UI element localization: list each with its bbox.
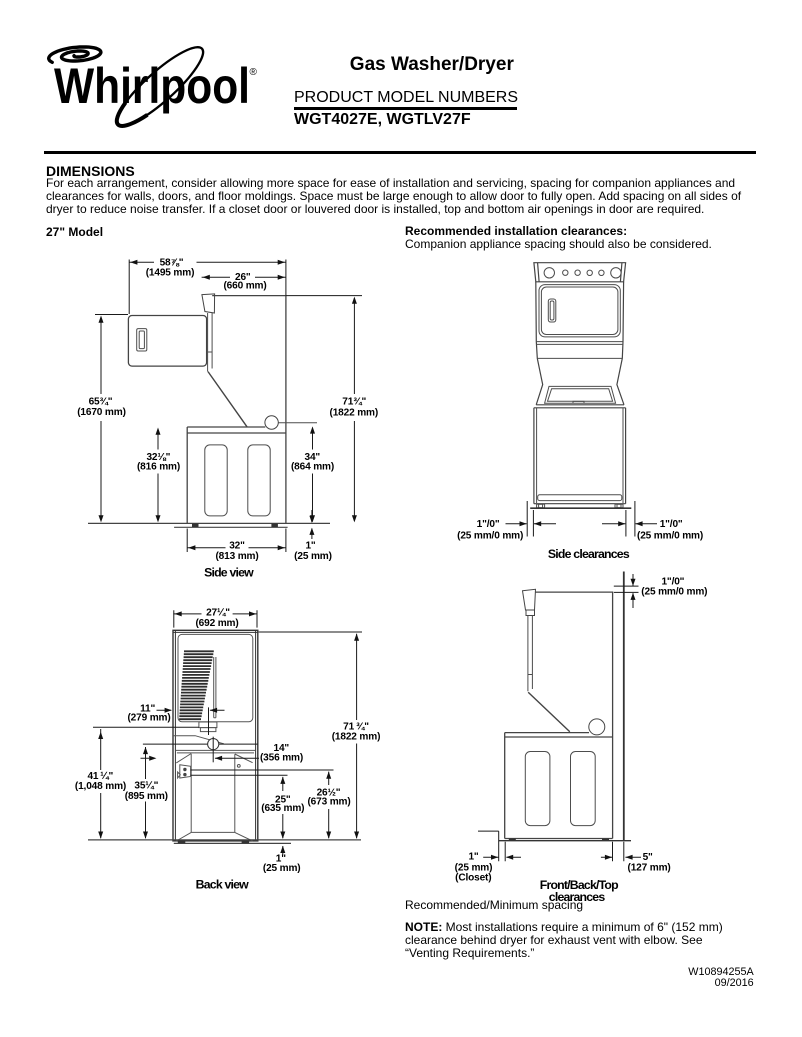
svg-text:(1822 mm): (1822 mm) bbox=[330, 407, 379, 418]
svg-text:(25 mm): (25 mm) bbox=[263, 863, 301, 874]
svg-text:Back view: Back view bbox=[196, 878, 250, 892]
svg-text:(673 mm): (673 mm) bbox=[307, 796, 350, 807]
svg-text:1": 1" bbox=[468, 851, 478, 862]
svg-text:(356 mm): (356 mm) bbox=[260, 753, 303, 764]
svg-text:(25 mm/0 mm): (25 mm/0 mm) bbox=[457, 531, 523, 542]
svg-text:1"/0": 1"/0" bbox=[477, 519, 500, 530]
svg-text:Side view: Side view bbox=[204, 565, 254, 579]
svg-text:(864 mm): (864 mm) bbox=[291, 461, 334, 472]
svg-text:65¾": 65¾" bbox=[89, 397, 113, 408]
svg-text:(279 mm): (279 mm) bbox=[127, 713, 170, 724]
svg-text:1"/0": 1"/0" bbox=[660, 519, 683, 530]
svg-text:(1,048 mm): (1,048 mm) bbox=[75, 781, 126, 792]
svg-text:(25 mm): (25 mm) bbox=[294, 551, 332, 562]
svg-text:(1822 mm): (1822 mm) bbox=[332, 732, 381, 743]
svg-text:(895 mm): (895 mm) bbox=[125, 791, 168, 802]
svg-text:(635 mm): (635 mm) bbox=[261, 803, 304, 814]
svg-text:(692 mm): (692 mm) bbox=[195, 618, 238, 629]
svg-text:(Closet): (Closet) bbox=[455, 873, 491, 884]
svg-text:(813 mm): (813 mm) bbox=[215, 551, 258, 562]
svg-text:(127 mm): (127 mm) bbox=[628, 862, 671, 873]
svg-text:(1670 mm): (1670 mm) bbox=[77, 407, 126, 418]
svg-text:71¾": 71¾" bbox=[342, 397, 366, 408]
svg-text:Whirlpool: Whirlpool bbox=[54, 58, 250, 114]
svg-text:(660 mm): (660 mm) bbox=[223, 281, 266, 292]
svg-text:®: ® bbox=[250, 67, 258, 78]
svg-text:(25 mm/0 mm): (25 mm/0 mm) bbox=[641, 586, 707, 597]
svg-text:(1495 mm): (1495 mm) bbox=[146, 268, 195, 279]
svg-text:27¼": 27¼" bbox=[206, 607, 230, 618]
svg-text:(816 mm): (816 mm) bbox=[137, 461, 180, 472]
svg-text:(25 mm/0 mm): (25 mm/0 mm) bbox=[637, 531, 703, 542]
